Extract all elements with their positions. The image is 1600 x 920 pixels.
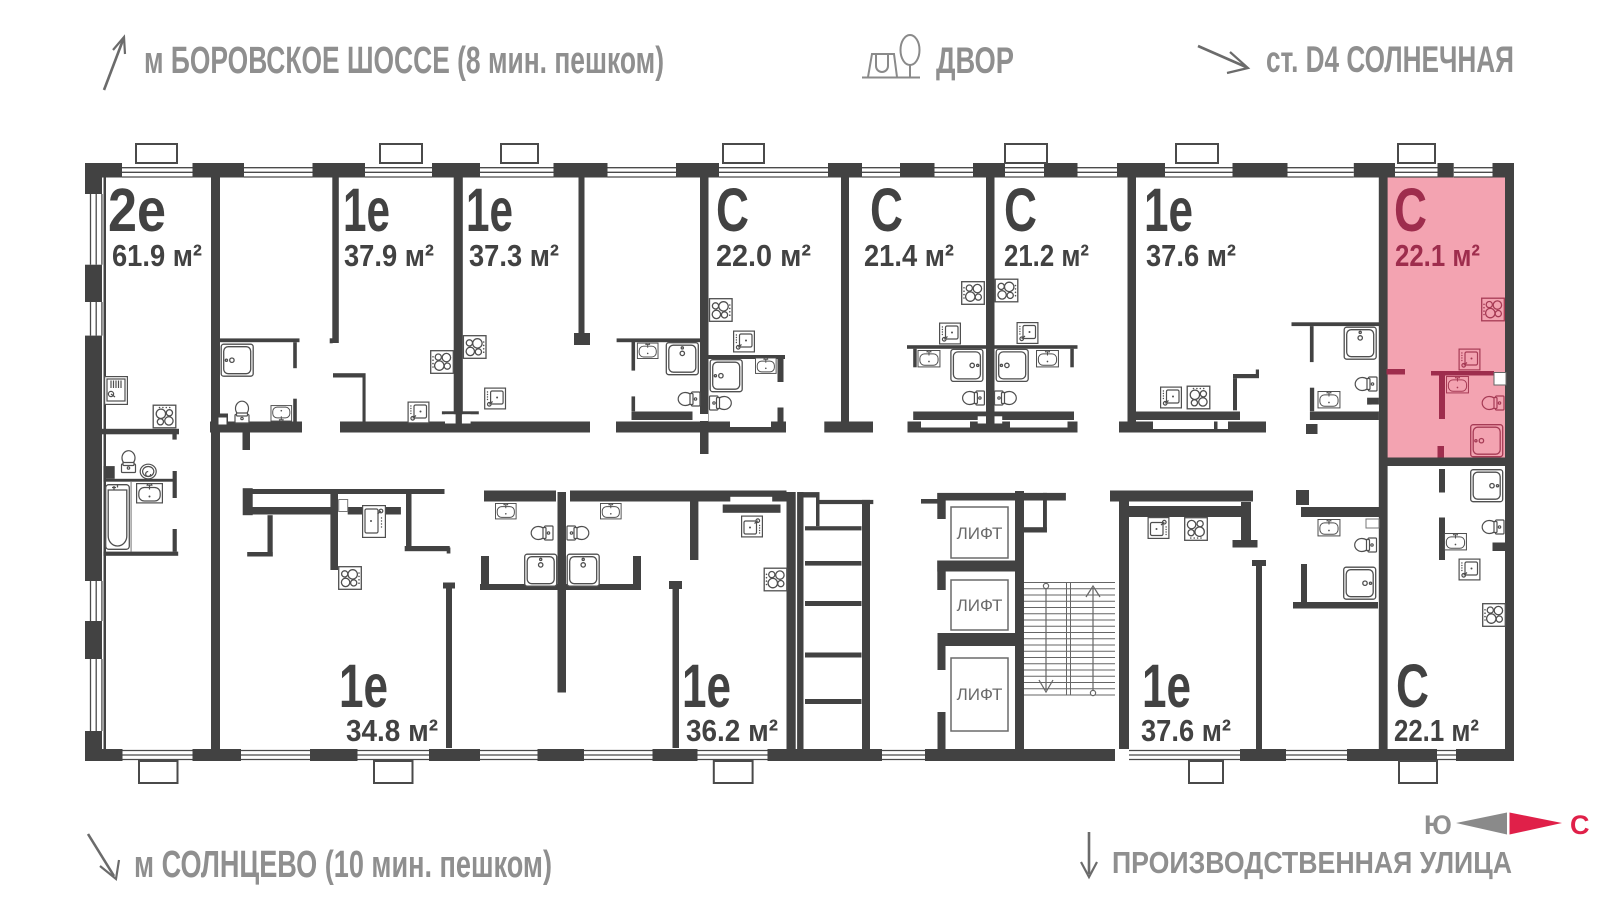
svg-text:36.2 м²: 36.2 м² — [686, 713, 778, 748]
svg-text:С: С — [1570, 810, 1590, 840]
svg-text:1е: 1е — [682, 652, 731, 720]
svg-text:С: С — [1004, 176, 1037, 244]
svg-text:1е: 1е — [466, 176, 513, 244]
svg-text:м СОЛНЦЕВО (10 мин. пешком): м СОЛНЦЕВО (10 мин. пешком) — [134, 844, 552, 886]
svg-text:С: С — [1394, 176, 1427, 244]
svg-text:1е: 1е — [343, 176, 390, 244]
svg-text:ЛИФТ: ЛИФТ — [957, 685, 1003, 704]
svg-text:37.6 м²: 37.6 м² — [1146, 238, 1236, 273]
svg-text:ЛИФТ: ЛИФТ — [957, 596, 1003, 615]
svg-text:1е: 1е — [1142, 652, 1191, 720]
svg-text:22.0 м²: 22.0 м² — [716, 238, 811, 273]
svg-text:34.8 м²: 34.8 м² — [346, 713, 438, 748]
svg-text:22.1 м²: 22.1 м² — [1394, 713, 1479, 748]
svg-text:1е: 1е — [339, 652, 388, 720]
svg-text:21.2 м²: 21.2 м² — [1004, 238, 1089, 273]
svg-text:ПРОИЗВОДСТВЕННАЯ УЛИЦА: ПРОИЗВОДСТВЕННАЯ УЛИЦА — [1112, 845, 1512, 880]
svg-text:С: С — [1396, 652, 1429, 720]
svg-text:37.3 м²: 37.3 м² — [469, 238, 559, 273]
svg-text:21.4 м²: 21.4 м² — [864, 238, 954, 273]
svg-text:2е: 2е — [108, 176, 166, 244]
svg-text:22.1 м²: 22.1 м² — [1395, 238, 1480, 273]
svg-text:37.9 м²: 37.9 м² — [344, 238, 434, 273]
svg-text:С: С — [716, 176, 749, 244]
svg-text:Ю: Ю — [1424, 810, 1452, 840]
svg-text:61.9 м²: 61.9 м² — [112, 238, 202, 273]
svg-text:С: С — [870, 176, 903, 244]
svg-text:м БОРОВСКОЕ ШОССЕ (8 мин. пешк: м БОРОВСКОЕ ШОССЕ (8 мин. пешком) — [144, 40, 664, 82]
svg-text:37.6 м²: 37.6 м² — [1141, 713, 1231, 748]
svg-text:ст. D4 СОЛНЕЧНАЯ: ст. D4 СОЛНЕЧНАЯ — [1266, 39, 1514, 80]
svg-text:ЛИФТ: ЛИФТ — [957, 524, 1003, 543]
svg-text:ДВОР: ДВОР — [936, 40, 1014, 81]
svg-text:1е: 1е — [1144, 176, 1193, 244]
